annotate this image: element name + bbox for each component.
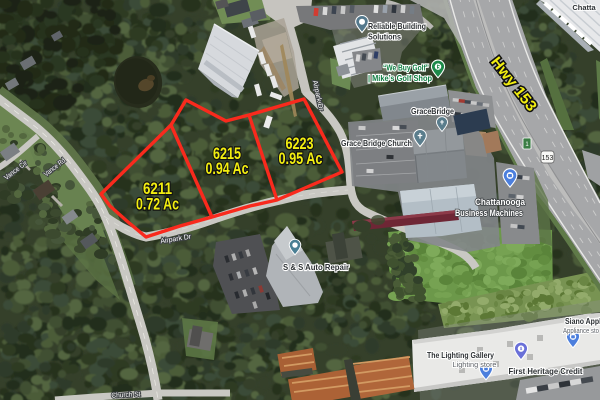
svg-text:“We Buy Golf”: “We Buy Golf”	[383, 63, 429, 73]
svg-text:The Lighting Gallery: The Lighting Gallery	[427, 350, 494, 360]
svg-text:Chatta: Chatta	[572, 3, 596, 12]
svg-text:Lighting store: Lighting store	[453, 362, 497, 369]
svg-text:0.95 Ac: 0.95 Ac	[279, 150, 323, 168]
svg-text:Grace Bridge Church: Grace Bridge Church	[341, 138, 412, 148]
svg-text:Appliance sto: Appliance sto	[563, 328, 599, 335]
svg-text:S & S Auto Repair: S & S Auto Repair	[283, 262, 350, 272]
svg-text:| Mike’s Golf Shop: | Mike’s Golf Shop	[368, 73, 432, 83]
svg-text:0.72 Ac: 0.72 Ac	[136, 196, 179, 214]
svg-text:Siano Appli: Siano Appli	[565, 316, 600, 326]
svg-text:First Heritage Credit: First Heritage Credit	[509, 366, 583, 376]
svg-text:GraceBridge: GraceBridge	[411, 106, 454, 116]
svg-text:Reliable Building: Reliable Building	[368, 21, 426, 31]
svg-text:Solutions: Solutions	[368, 32, 401, 42]
svg-text:Chattanooga: Chattanooga	[475, 197, 526, 207]
svg-text:Business Machines: Business Machines	[455, 208, 523, 218]
svg-text:0.94 Ac: 0.94 Ac	[206, 160, 249, 178]
svg-text:153: 153	[542, 155, 554, 162]
